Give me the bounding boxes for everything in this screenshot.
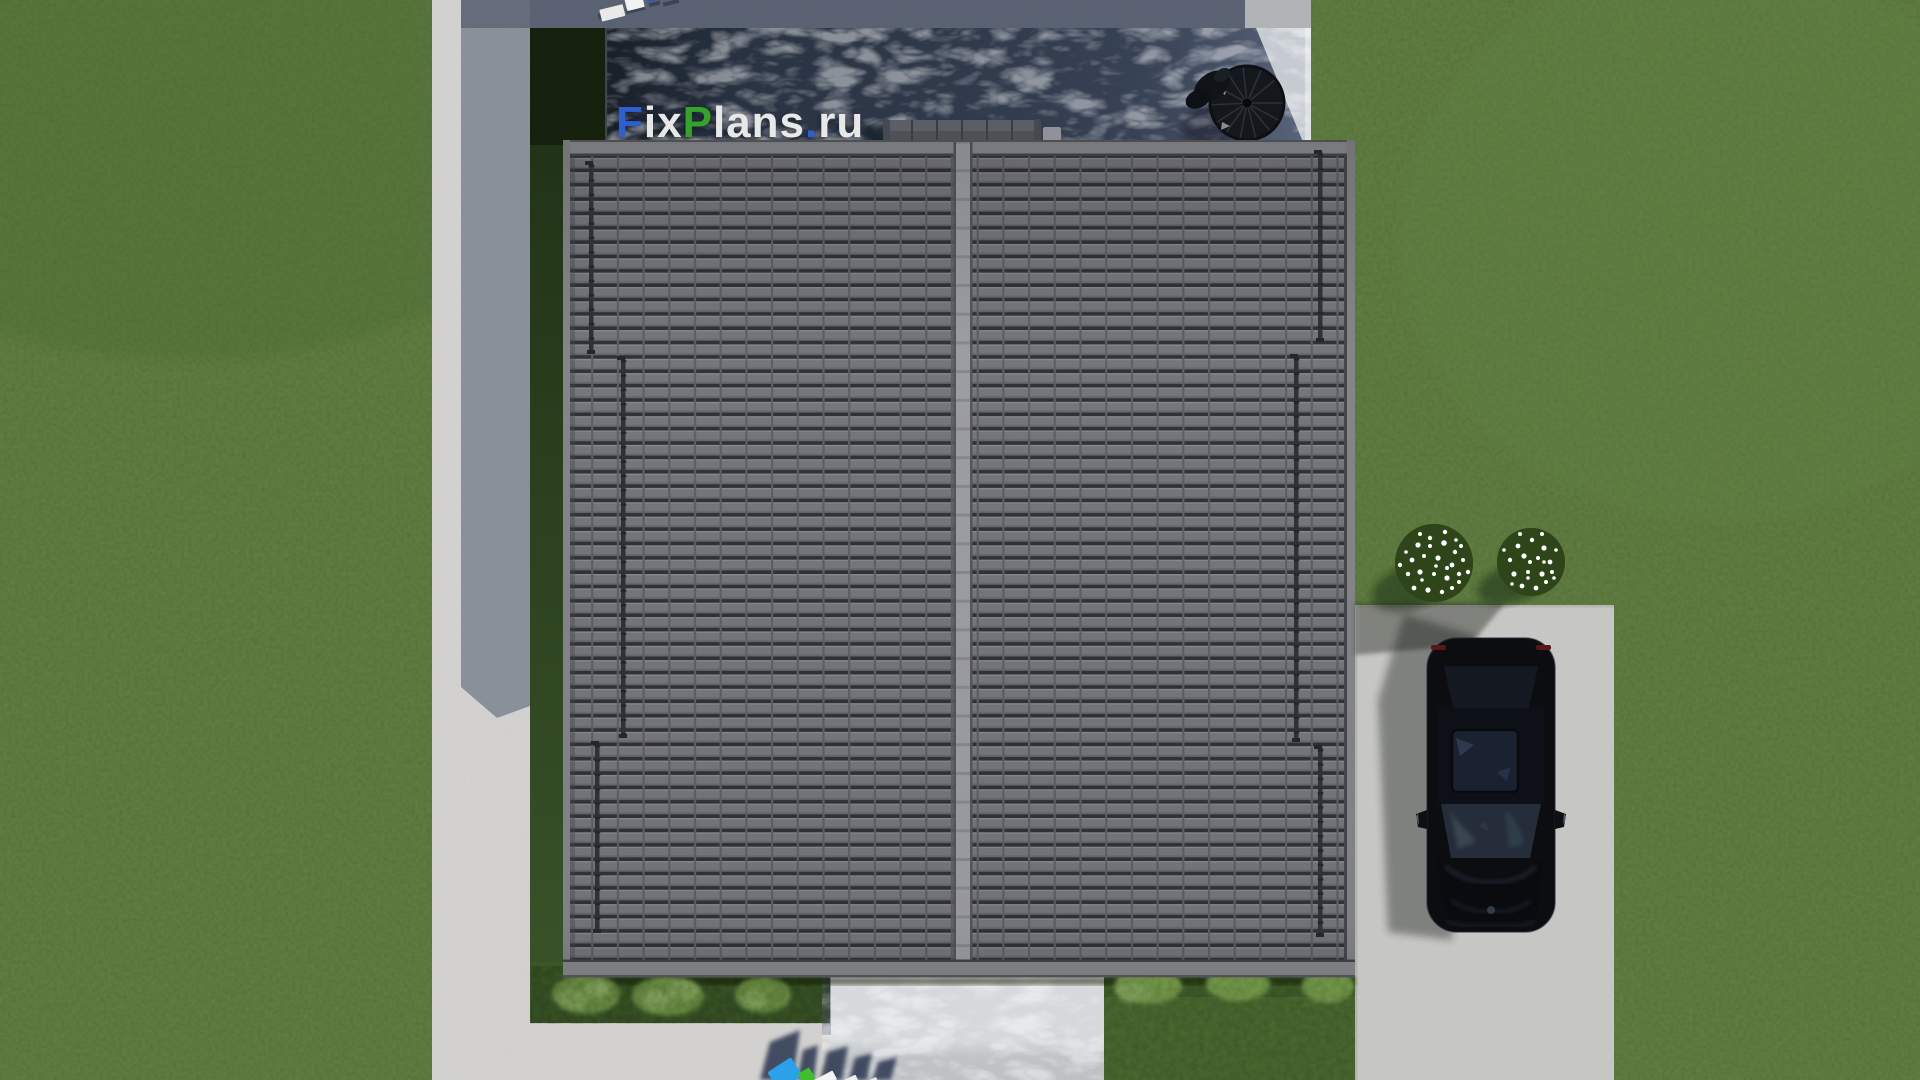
svg-text:FixPlans.ru: FixPlans.ru <box>616 98 864 147</box>
